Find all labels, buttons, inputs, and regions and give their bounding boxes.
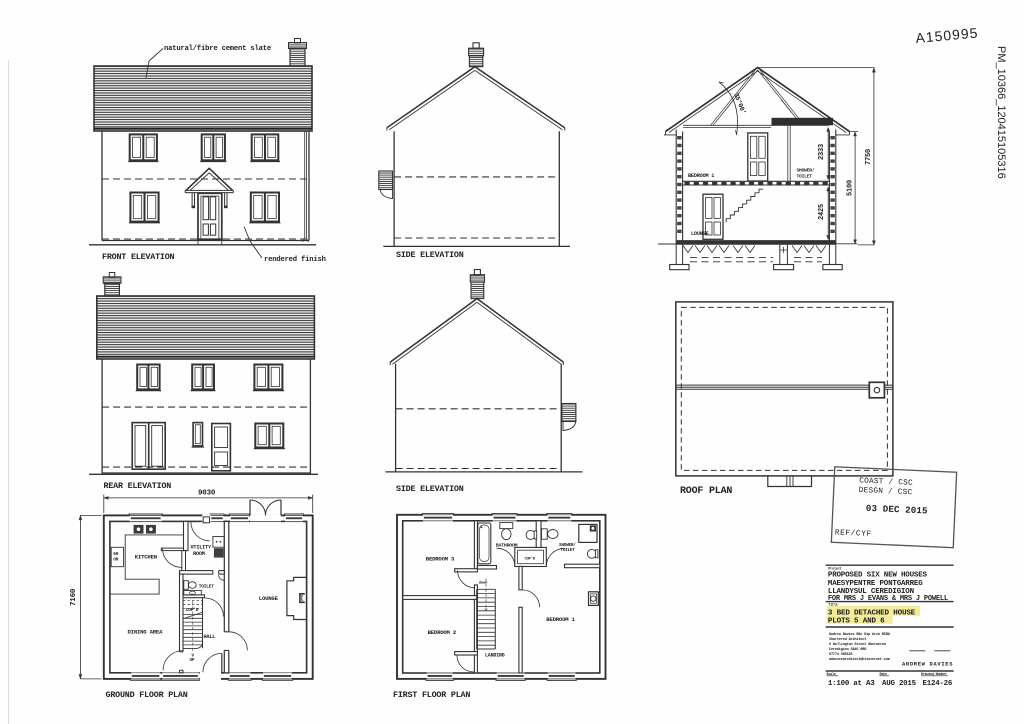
svg-text:DESGN / CSC: DESGN / CSC bbox=[859, 487, 913, 497]
svg-text:down: down bbox=[479, 580, 488, 585]
svg-text:DINING AREA: DINING AREA bbox=[128, 629, 164, 636]
svg-text:FIRST FLOOR PLAN: FIRST FLOOR PLAN bbox=[393, 690, 470, 700]
svg-text:MAESYPENTRE PONTGARREG: MAESYPENTRE PONTGARREG bbox=[828, 580, 923, 588]
svg-text:BEDROOM 3: BEDROOM 3 bbox=[426, 556, 455, 563]
svg-text:GROUND FLOOR PLAN: GROUND FLOOR PLAN bbox=[106, 690, 188, 700]
svg-text:5100: 5100 bbox=[847, 180, 855, 196]
svg-text:rendered finish: rendered finish bbox=[264, 256, 326, 264]
svg-text:BEDROOM 1: BEDROOM 1 bbox=[688, 173, 714, 179]
svg-text:HALL: HALL bbox=[204, 634, 216, 640]
svg-text:PLOTS 5 AND 6: PLOTS 5 AND 6 bbox=[828, 618, 885, 626]
svg-text:FOR MRS J EVANS & MRS J POWELL: FOR MRS J EVANS & MRS J POWELL bbox=[828, 595, 948, 603]
svg-text:TOILET: TOILET bbox=[199, 584, 215, 590]
svg-text:7160: 7160 bbox=[70, 588, 78, 606]
svg-text:2333: 2333 bbox=[818, 144, 826, 160]
svg-text:BEDROOM 1: BEDROOM 1 bbox=[546, 616, 575, 623]
svg-text:7750: 7750 bbox=[865, 149, 873, 165]
svg-text:TOILET: TOILET bbox=[561, 548, 576, 553]
svg-text:BEDROOM 2: BEDROOM 2 bbox=[428, 629, 457, 636]
svg-text:SHOWER/: SHOWER/ bbox=[797, 168, 815, 174]
svg-text:REAR ELEVATION: REAR ELEVATION bbox=[104, 481, 172, 491]
svg-text:Chartered Architect: Chartered Architect bbox=[829, 637, 866, 642]
svg-text:ROOF PLAN: ROOF PLAN bbox=[680, 486, 732, 497]
svg-text:Ceredigion SA46 0BG: Ceredigion SA46 0BG bbox=[829, 647, 866, 652]
svg-text:CUP'D: CUP'D bbox=[186, 607, 199, 613]
svg-text:A150995: A150995 bbox=[915, 25, 979, 46]
svg-text:CUP'D: CUP'D bbox=[525, 556, 536, 561]
svg-text:natural/fibre cement slate: natural/fibre cement slate bbox=[164, 45, 271, 53]
svg-text:COAST / CSC: COAST / CSC bbox=[859, 477, 913, 487]
svg-text:UP: UP bbox=[190, 659, 195, 663]
svg-text:60: 60 bbox=[113, 552, 118, 557]
svg-text:9030: 9030 bbox=[198, 490, 216, 498]
svg-text:1:100 at A3: 1:100 at A3 bbox=[828, 680, 875, 688]
svg-text:2425: 2425 bbox=[818, 204, 826, 220]
svg-text:REF/CYF: REF/CYF bbox=[835, 529, 872, 539]
svg-text:E124-26: E124-26 bbox=[923, 680, 953, 688]
svg-text:03 DEC 2015: 03 DEC 2015 bbox=[866, 503, 929, 517]
svg-text:07774 985526: 07774 985526 bbox=[829, 653, 853, 657]
svg-text:SIDE ELEVATION: SIDE ELEVATION bbox=[396, 250, 464, 260]
svg-text:LANDING: LANDING bbox=[485, 653, 505, 659]
svg-text:ANDREW DAVIES: ANDREW DAVIES bbox=[902, 662, 953, 668]
svg-text:adaviesarchitect@btinternet.co: adaviesarchitect@btinternet.com bbox=[829, 657, 891, 662]
svg-text:Andrew Davies BSc Dip Arch RIB: Andrew Davies BSc Dip Arch RIBA bbox=[829, 632, 891, 637]
svg-text:Title: Title bbox=[828, 602, 837, 607]
svg-text:Date: Date bbox=[880, 673, 888, 677]
svg-text:KITCHEN: KITCHEN bbox=[135, 554, 157, 561]
svg-text:SHOWER/: SHOWER/ bbox=[559, 543, 576, 548]
svg-text:SIDE ELEVATION: SIDE ELEVATION bbox=[396, 484, 464, 494]
svg-text:Scale: Scale bbox=[827, 672, 836, 677]
svg-text:LOUNGE: LOUNGE bbox=[259, 595, 279, 602]
svg-text:UTILITY: UTILITY bbox=[191, 545, 212, 551]
svg-text:OH: OH bbox=[113, 558, 118, 563]
svg-text:6 Wellington Street Aberaeron: 6 Wellington Street Aberaeron bbox=[829, 642, 886, 647]
svg-text:AUG 2015: AUG 2015 bbox=[882, 680, 917, 688]
svg-text:PM_10366_120415105316: PM_10366_120415105316 bbox=[995, 46, 1007, 179]
svg-text:LOUNGE: LOUNGE bbox=[691, 231, 709, 237]
svg-text:ROOM: ROOM bbox=[193, 551, 205, 557]
svg-text:FRONT ELEVATION: FRONT ELEVATION bbox=[102, 252, 175, 262]
svg-text:BATHROOM: BATHROOM bbox=[496, 543, 518, 549]
svg-text:TOILET: TOILET bbox=[797, 174, 813, 180]
svg-text:3 BED DETACHED HOUSE: 3 BED DETACHED HOUSE bbox=[828, 609, 916, 617]
svg-text:PROPOSED SIX NEW HOUSES: PROPOSED SIX NEW HOUSES bbox=[828, 571, 928, 579]
svg-text:Drawing Number: Drawing Number bbox=[921, 672, 947, 677]
